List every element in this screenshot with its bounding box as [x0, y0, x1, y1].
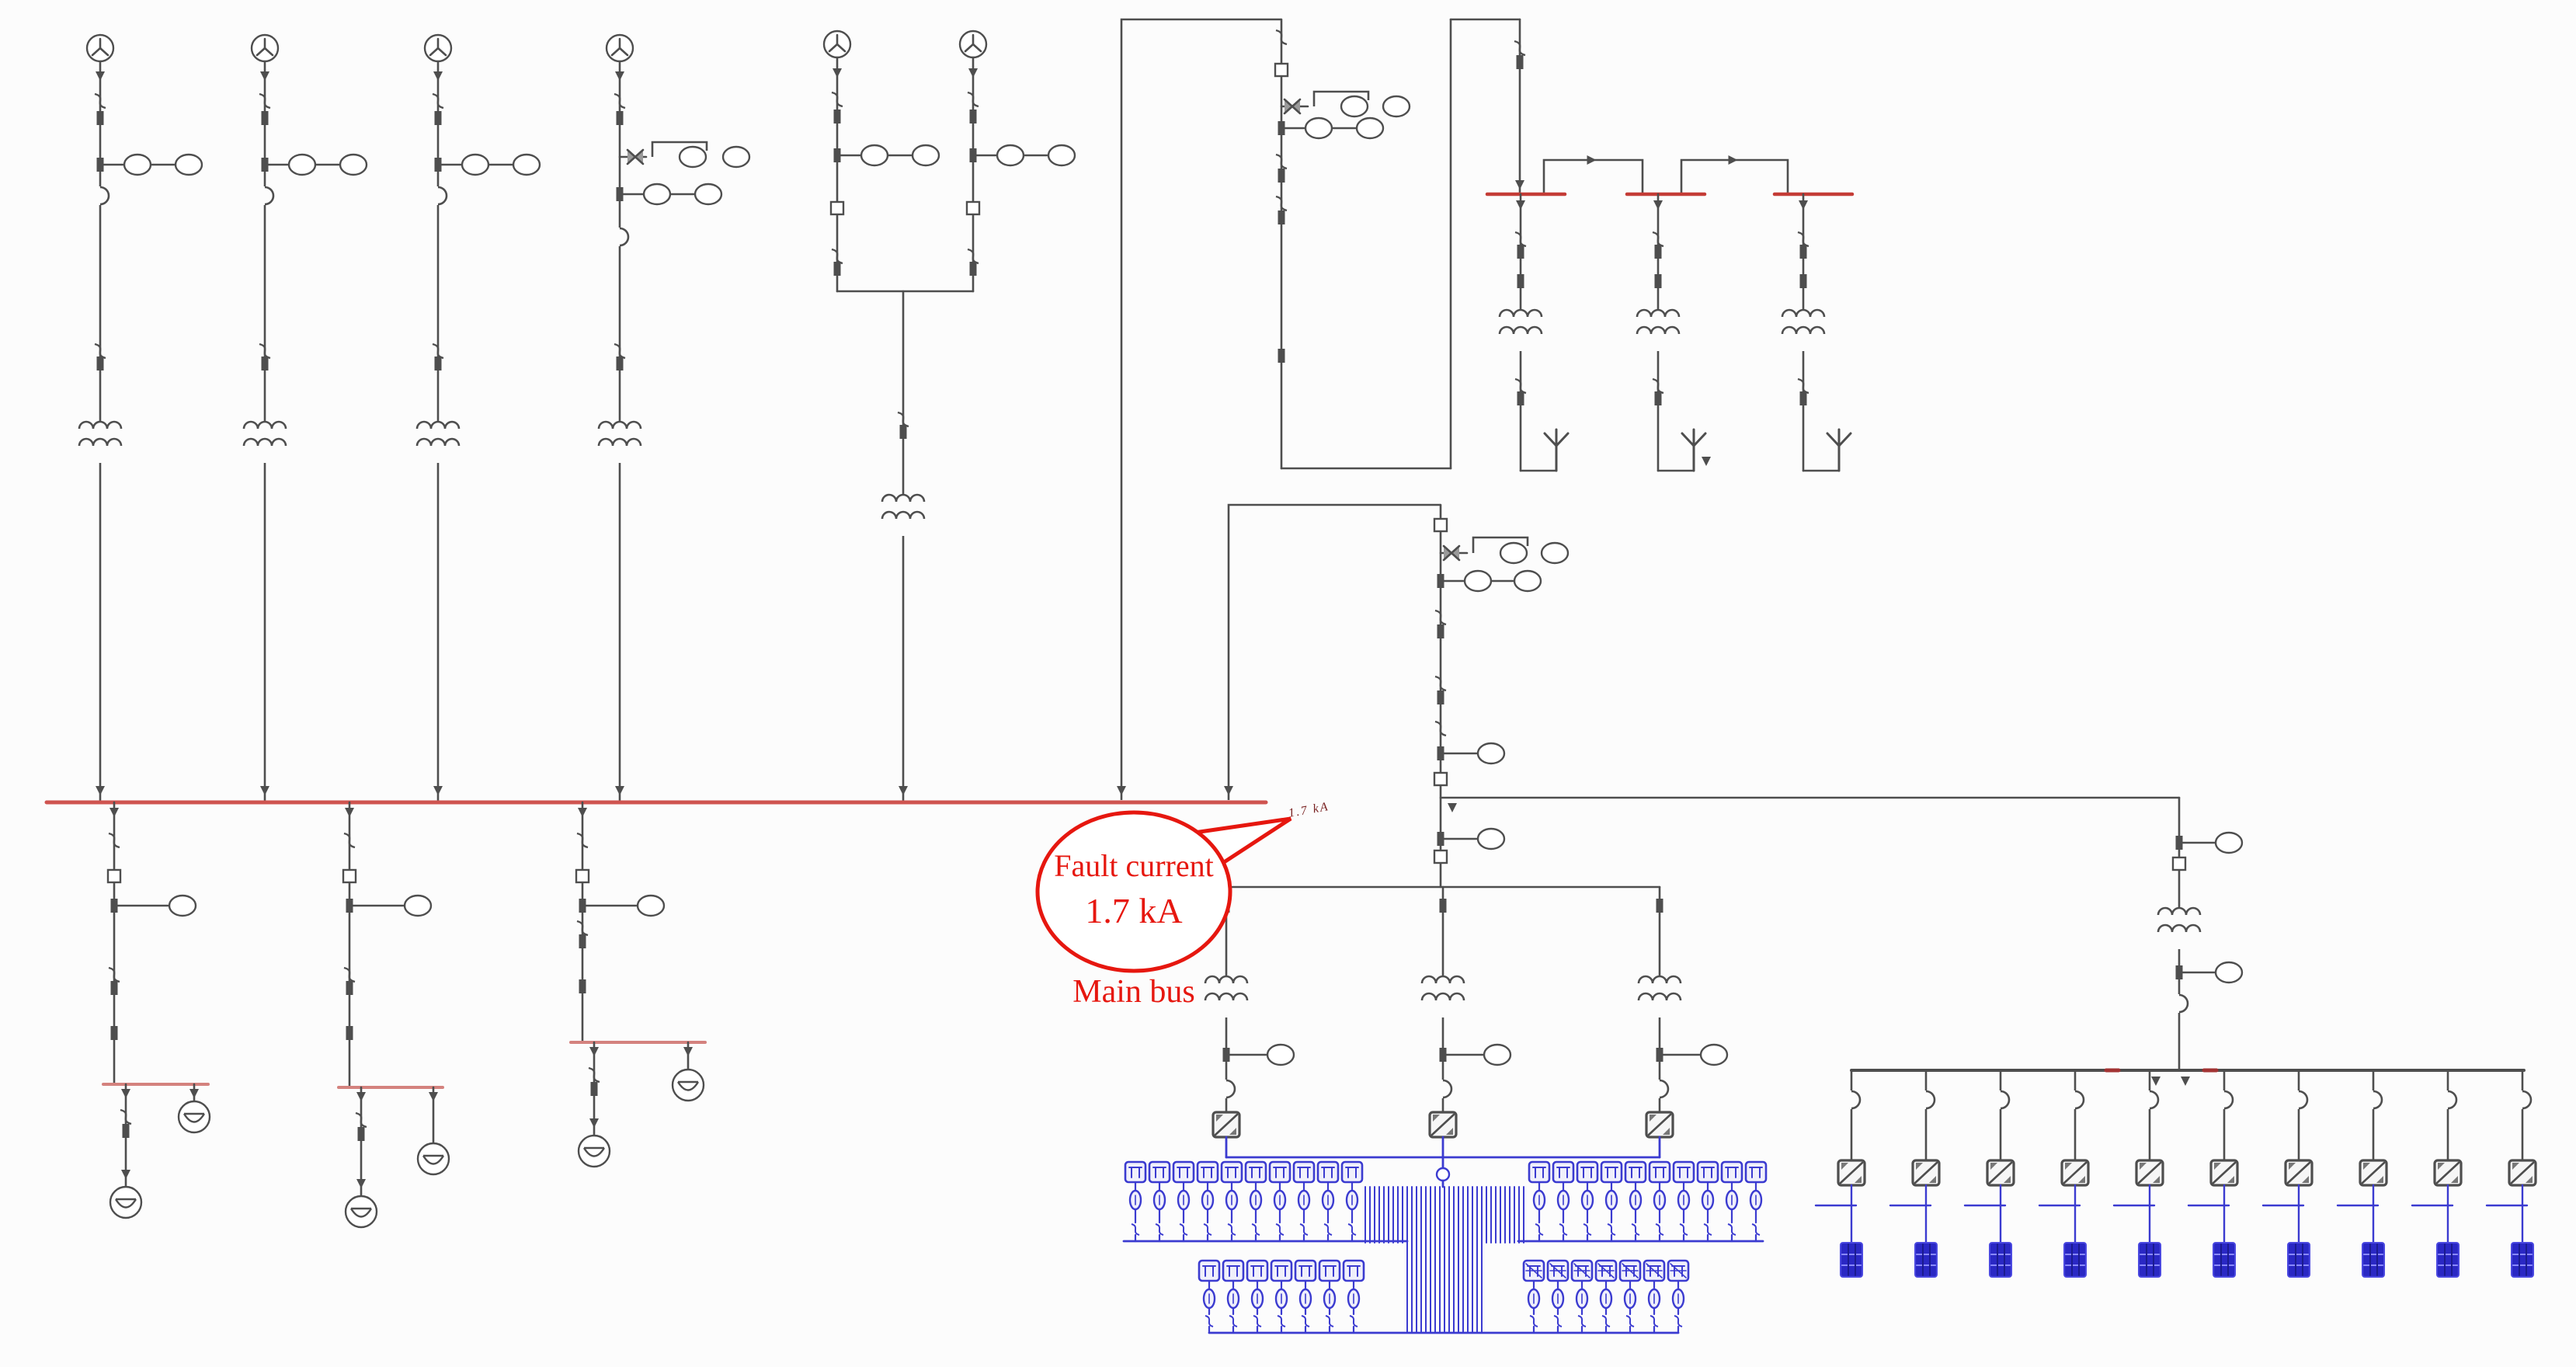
main-bus-label: Main bus — [1072, 974, 1195, 1010]
wind-turbine-branch — [1627, 194, 1711, 471]
ct-metering-icon — [1285, 99, 1300, 113]
motor-feeder — [339, 802, 449, 1227]
capacitor-string — [1548, 1261, 1568, 1333]
capacitor-string — [1644, 1261, 1664, 1333]
converter-icon — [1987, 1160, 2014, 1185]
capacitor-string — [1342, 1162, 1362, 1241]
converter-icon — [1838, 1160, 1865, 1185]
transformer-icon — [2158, 908, 2200, 949]
generator-icon — [87, 35, 113, 61]
generator-feeder — [599, 35, 749, 800]
callout-line1: Fault current — [1054, 848, 1214, 883]
motor-feeder — [103, 802, 210, 1218]
motor-icon — [110, 1187, 141, 1218]
battery-icon — [2064, 1243, 2086, 1277]
capacitor-string — [1596, 1261, 1616, 1333]
motor-icon — [418, 1143, 449, 1174]
transformer-icon — [599, 422, 641, 463]
single-line-diagram: Fault current 1.7 kA Main bus 1.7 kA — [0, 0, 2576, 1367]
motor-feeders — [103, 802, 705, 1227]
generator-feeder — [244, 35, 367, 800]
motor-icon — [346, 1196, 377, 1227]
capacitor-bank — [1124, 1162, 1766, 1333]
motor-icon — [673, 1070, 704, 1101]
transformer-icon — [1205, 976, 1247, 1017]
callout-line2: 1.7 kA — [1085, 891, 1182, 930]
motor-icon — [579, 1136, 610, 1167]
diagram-canvas: Fault current 1.7 kA Main bus 1.7 kA — [0, 0, 2576, 1367]
converter-icon — [2435, 1160, 2461, 1185]
capacitor-string — [1295, 1261, 1316, 1333]
capacitor-string — [1746, 1162, 1766, 1241]
battery-branch — [2412, 1070, 2461, 1277]
battery-icon — [1841, 1243, 1862, 1277]
capacitor-string — [1698, 1162, 1718, 1241]
capacitor-string — [1223, 1261, 1243, 1333]
converter-icon — [2286, 1160, 2312, 1185]
ct-metering-icon — [627, 150, 643, 164]
top-generator-feeders — [79, 31, 1075, 800]
battery-branch — [2188, 1070, 2237, 1277]
capacitor-string — [1319, 1261, 1340, 1333]
fault-callout: Fault current 1.7 kA — [1038, 812, 1291, 971]
transformer-icon — [1782, 310, 1824, 351]
generator-feeder — [79, 35, 202, 800]
diagram-art — [47, 19, 2536, 1333]
battery-branch — [2263, 1070, 2312, 1277]
motor-icon — [179, 1101, 210, 1132]
capacitor-string — [1722, 1162, 1742, 1241]
wind-turbine-branch — [1487, 194, 1568, 471]
converter-icon — [2211, 1160, 2237, 1185]
converter-icon — [2360, 1160, 2387, 1185]
battery-icon — [2512, 1243, 2533, 1277]
battery-branch — [1816, 1070, 1865, 1277]
transformer-icon — [79, 422, 121, 463]
transformer-icon — [882, 495, 924, 536]
transformer-icon — [1637, 310, 1679, 351]
converter-icon — [2136, 1160, 2163, 1185]
capacitor-string — [1270, 1162, 1290, 1241]
capacitor-string — [1674, 1162, 1694, 1241]
generator-icon — [824, 31, 850, 57]
transformer-icon — [244, 422, 286, 463]
transformer-icon — [1500, 310, 1542, 351]
capacitor-string — [1247, 1261, 1267, 1333]
battery-branch — [1965, 1070, 2014, 1277]
capacitor-string — [1318, 1162, 1338, 1241]
capacitor-string — [1246, 1162, 1266, 1241]
wind-turbine-icon — [1827, 430, 1851, 471]
battery-icon — [2288, 1243, 2310, 1277]
battery-branch — [2487, 1070, 2536, 1277]
capacitor-string — [1294, 1162, 1314, 1241]
capacitor-string — [1625, 1162, 1646, 1241]
capacitor-string — [1601, 1162, 1622, 1241]
capacitor-string — [1222, 1162, 1242, 1241]
battery-icon — [2362, 1243, 2384, 1277]
converter-icon — [1213, 1112, 1239, 1137]
capacitor-string — [1524, 1261, 1544, 1333]
battery-icon — [2437, 1243, 2459, 1277]
capacitor-string — [1650, 1162, 1670, 1241]
capacitor-string — [1668, 1261, 1688, 1333]
wind-turbine-icon — [1545, 430, 1568, 471]
wind-turbine-icon — [1682, 430, 1705, 471]
battery-icon — [2139, 1243, 2161, 1277]
capacitor-string — [1198, 1162, 1218, 1241]
capacitor-string — [1125, 1162, 1145, 1241]
capacitor-string — [1553, 1162, 1573, 1241]
merged-generator-pair — [824, 31, 1075, 800]
generator-icon — [607, 35, 633, 61]
capacitor-string — [1577, 1162, 1597, 1241]
motor-feeder — [571, 802, 705, 1167]
battery-icon — [1915, 1243, 1937, 1277]
wind-farm-section — [1117, 19, 1852, 800]
battery-storage-section — [1816, 798, 2536, 1277]
capacitor-string — [1620, 1261, 1640, 1333]
capacitor-string — [1149, 1162, 1170, 1241]
converter-section — [1205, 505, 2179, 1187]
converter-icon — [1430, 1112, 1456, 1137]
battery-branch — [2338, 1070, 2387, 1277]
capacitor-string — [1344, 1261, 1364, 1333]
converter-icon — [2509, 1160, 2536, 1185]
ct-metering-icon — [1444, 546, 1459, 560]
transformer-icon — [417, 422, 459, 463]
capacitor-string — [1572, 1261, 1592, 1333]
battery-branch — [2039, 1070, 2088, 1277]
generator-icon — [252, 35, 278, 61]
capacitor-string — [1199, 1261, 1219, 1333]
capacitor-string — [1173, 1162, 1194, 1241]
wind-turbine-branch — [1775, 194, 1852, 471]
battery-icon — [2213, 1243, 2235, 1277]
converter-icon — [1913, 1160, 1939, 1185]
battery-branch — [1890, 1070, 1939, 1277]
converter-branch — [1639, 887, 1727, 1157]
battery-branch — [2114, 1070, 2163, 1277]
capacitor-string — [1271, 1261, 1291, 1333]
converter-icon — [1646, 1112, 1673, 1137]
transformer-icon — [1422, 976, 1464, 1017]
converter-icon — [2062, 1160, 2088, 1185]
fault-current-value: 1.7 kA — [1288, 800, 1330, 820]
transformer-icon — [1639, 976, 1681, 1017]
battery-icon — [1990, 1243, 2011, 1277]
converter-branch — [1422, 887, 1510, 1157]
generator-icon — [425, 35, 451, 61]
generator-feeder — [417, 35, 540, 800]
capacitor-string — [1529, 1162, 1549, 1241]
generator-icon — [960, 31, 986, 57]
